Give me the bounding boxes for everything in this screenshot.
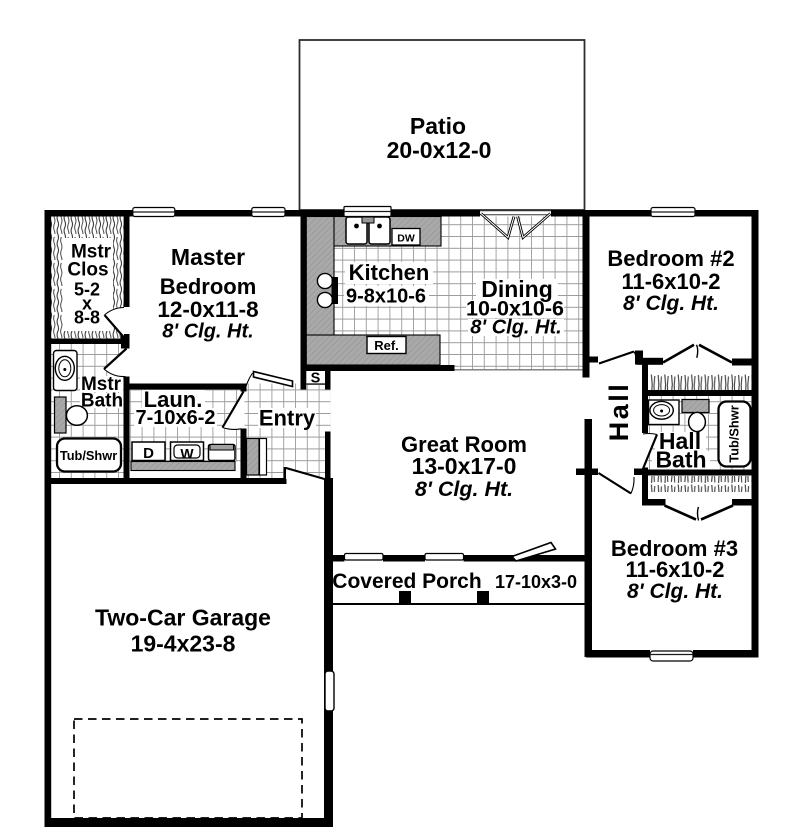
svg-text:DW: DW xyxy=(397,233,415,245)
svg-text:8' Clg. Ht.: 8' Clg. Ht. xyxy=(623,292,719,315)
svg-text:Tub/Shwr: Tub/Shwr xyxy=(727,405,742,462)
svg-text:Entry: Entry xyxy=(259,406,316,431)
svg-text:D: D xyxy=(143,445,154,462)
svg-text:19-4x23-8: 19-4x23-8 xyxy=(131,631,236,657)
svg-text:Hall: Hall xyxy=(604,382,634,442)
svg-text:Master: Master xyxy=(171,244,245,270)
svg-text:Tub/Shwr: Tub/Shwr xyxy=(60,448,117,463)
svg-text:S: S xyxy=(311,371,321,387)
svg-text:7-10x6-2: 7-10x6-2 xyxy=(135,407,215,429)
svg-text:Clos: Clos xyxy=(67,260,108,281)
svg-text:Bath: Bath xyxy=(655,447,706,473)
svg-text:Bedroom: Bedroom xyxy=(160,274,257,299)
svg-text:9-8x10-6: 9-8x10-6 xyxy=(346,286,426,308)
svg-text:8' Clg. Ht.: 8' Clg. Ht. xyxy=(415,477,513,501)
svg-text:8' Clg. Ht.: 8' Clg. Ht. xyxy=(470,317,561,339)
svg-text:Bath: Bath xyxy=(81,391,123,412)
svg-text:13-0x17-0: 13-0x17-0 xyxy=(412,453,517,479)
svg-text:11-6x10-2: 11-6x10-2 xyxy=(621,269,720,294)
svg-text:Patio: Patio xyxy=(410,113,466,139)
svg-text:Kitchen: Kitchen xyxy=(349,260,430,285)
svg-text:8' Clg. Ht.: 8' Clg. Ht. xyxy=(162,321,253,343)
svg-text:Covered Porch: Covered Porch xyxy=(332,570,481,593)
svg-text:8-8: 8-8 xyxy=(74,308,100,328)
svg-text:Ref.: Ref. xyxy=(374,338,399,353)
svg-text:20-0x12-0: 20-0x12-0 xyxy=(387,137,492,163)
svg-text:12-0x11-8: 12-0x11-8 xyxy=(157,297,258,322)
svg-text:Two-Car Garage: Two-Car Garage xyxy=(95,605,271,631)
svg-text:8' Clg. Ht.: 8' Clg. Ht. xyxy=(627,580,723,603)
svg-text:W: W xyxy=(180,446,194,462)
svg-text:17-10x3-0: 17-10x3-0 xyxy=(495,572,577,592)
svg-text:11-6x10-2: 11-6x10-2 xyxy=(625,557,724,582)
svg-text:Bedroom #2: Bedroom #2 xyxy=(607,246,734,271)
